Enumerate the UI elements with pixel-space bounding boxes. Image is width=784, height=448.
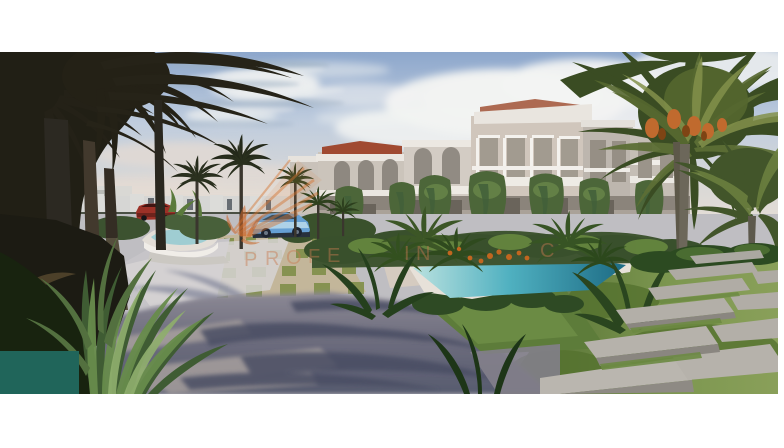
svg-text:O: O [286,247,302,269]
svg-text:N: N [416,243,430,265]
svg-text:F: F [308,246,320,268]
svg-text:R: R [265,248,279,270]
svg-text:I: I [404,243,410,265]
svg-text:C: C [540,240,554,262]
svg-text:P: P [244,249,257,271]
svg-text:E: E [327,245,340,267]
